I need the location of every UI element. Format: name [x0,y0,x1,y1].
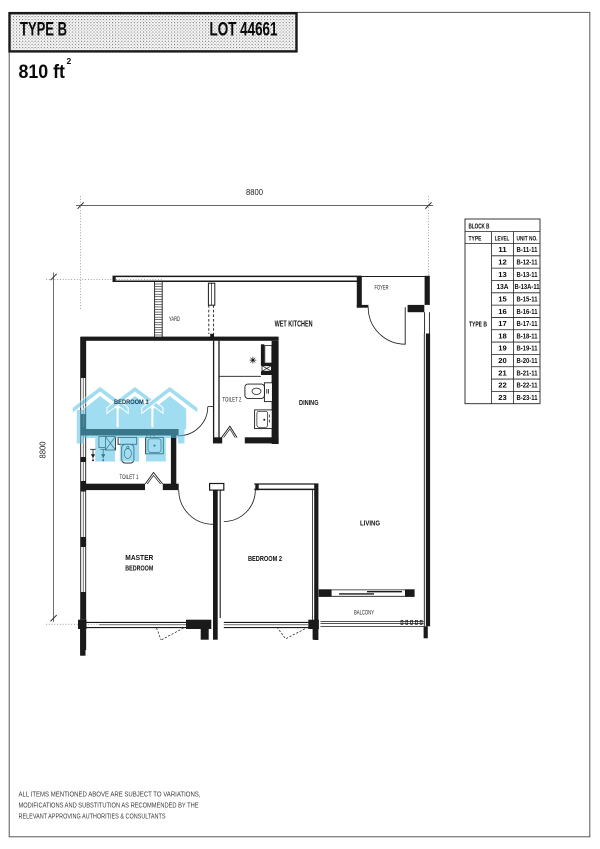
svg-text:13: 13 [498,270,507,279]
svg-text:21: 21 [498,368,507,377]
svg-text:19: 19 [498,344,507,353]
svg-text:TOILET 2: TOILET 2 [222,397,241,404]
svg-text:LEVEL: LEVEL [495,236,510,243]
svg-text:B-16-11: B-16-11 [517,307,538,316]
svg-text:12: 12 [498,257,507,266]
svg-text:2: 2 [67,56,72,66]
svg-text:B-13-11: B-13-11 [517,270,538,279]
svg-text:23: 23 [498,393,507,402]
svg-text:TYPE: TYPE [469,236,482,243]
svg-text:11: 11 [498,245,507,254]
svg-text:TYPE B: TYPE B [469,321,487,328]
svg-text:WET KITCHEN: WET KITCHEN [275,320,313,329]
svg-text:16: 16 [498,307,507,316]
svg-text:YARD: YARD [169,317,180,323]
svg-text:B-18-11: B-18-11 [517,331,538,340]
svg-text:TOILET 1: TOILET 1 [120,474,139,481]
svg-text:B-15-11: B-15-11 [517,294,538,303]
svg-text:810 ft: 810 ft [19,61,66,83]
svg-text:20: 20 [498,356,507,365]
svg-text:BEDROOM 3: BEDROOM 3 [114,399,149,406]
svg-text:FOYER: FOYER [375,285,389,291]
svg-text:B-11-11: B-11-11 [517,245,538,254]
svg-text:8800: 8800 [246,188,263,197]
svg-text:B-23-11: B-23-11 [517,393,538,402]
svg-text:DINING: DINING [299,398,319,407]
svg-text:BEDROOM: BEDROOM [125,565,153,572]
svg-text:BLOCK B: BLOCK B [469,223,490,230]
svg-text:BALCONY: BALCONY [354,611,374,617]
svg-text:8800: 8800 [39,441,48,458]
svg-text:B-21-11: B-21-11 [517,368,538,377]
svg-text:UNIT NO.: UNIT NO. [517,236,538,243]
svg-text:ALL ITEMS MENTIONED ABOVE ARE: ALL ITEMS MENTIONED ABOVE ARE SUBJECT TO… [19,790,201,799]
svg-text:17: 17 [498,319,507,328]
svg-text:B-22-11: B-22-11 [517,381,538,390]
svg-text:B-20-11: B-20-11 [517,356,538,365]
svg-text:B-12-11: B-12-11 [517,257,538,266]
svg-text:RELEVANT APPROVING AUTHORITIES: RELEVANT APPROVING AUTHORITIES & CONSULT… [19,812,166,821]
svg-text:B-17-11: B-17-11 [517,319,538,328]
svg-text:18: 18 [498,331,507,340]
svg-text:22: 22 [498,381,507,390]
svg-text:BEDROOM 2: BEDROOM 2 [248,554,282,563]
svg-text:B-13A-11: B-13A-11 [515,282,540,291]
svg-text:LIVING: LIVING [360,519,380,528]
svg-text:TYPE B: TYPE B [20,20,67,41]
svg-text:MODIFICATIONS AND SUBSTITUTION: MODIFICATIONS AND SUBSTITUTION AS RECOMM… [19,801,199,810]
svg-text:15: 15 [498,294,507,303]
svg-text:13A: 13A [497,282,509,291]
svg-text:MASTER: MASTER [125,555,153,562]
svg-text:LOT 44661: LOT 44661 [210,20,278,41]
svg-text:B-19-11: B-19-11 [517,344,538,353]
